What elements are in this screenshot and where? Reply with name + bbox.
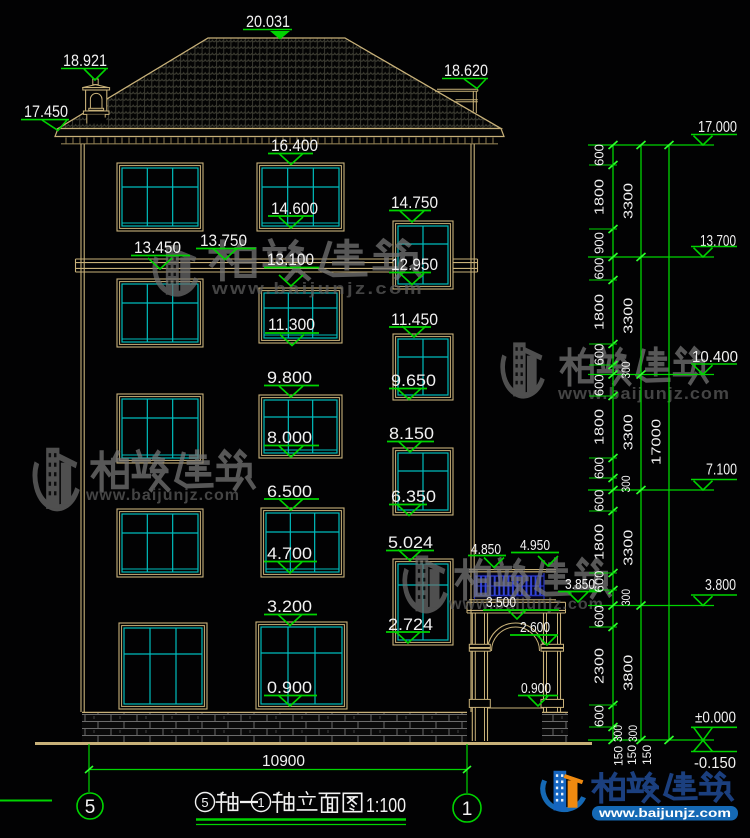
svg-text:www.baijunjz.com: www.baijunjz.com	[211, 279, 424, 298]
svg-text:18.620: 18.620	[444, 61, 488, 80]
svg-text:5.024: 5.024	[388, 533, 433, 552]
svg-text:1:100: 1:100	[366, 795, 406, 817]
svg-text:8.000: 8.000	[267, 428, 312, 447]
svg-text:18.921: 18.921	[63, 51, 107, 70]
svg-text:3.850: 3.850	[565, 577, 595, 593]
svg-text:13.100: 13.100	[267, 250, 314, 269]
svg-text:3.800: 3.800	[705, 577, 736, 594]
svg-text:300: 300	[611, 725, 625, 742]
svg-text:600: 600	[592, 144, 607, 166]
svg-text:www.baijunjz.com: www.baijunjz.com	[598, 808, 731, 820]
svg-text:3.200: 3.200	[267, 597, 312, 616]
svg-text:www.baijunjz.com: www.baijunjz.com	[85, 487, 240, 504]
svg-text:17.000: 17.000	[698, 119, 737, 136]
svg-text:7.100: 7.100	[706, 462, 737, 479]
svg-text:10900: 10900	[262, 753, 305, 770]
svg-text:3300: 3300	[621, 530, 636, 566]
svg-text:1: 1	[462, 799, 473, 820]
svg-text:3800: 3800	[621, 655, 636, 691]
svg-text:www.baijunjz.com: www.baijunjz.com	[557, 384, 730, 403]
svg-text:11.300: 11.300	[268, 315, 315, 334]
svg-text:6.350: 6.350	[391, 487, 436, 506]
svg-text:13.450: 13.450	[134, 238, 181, 257]
svg-text:14.750: 14.750	[391, 193, 438, 212]
svg-text:150: 150	[640, 745, 654, 765]
svg-text:600: 600	[592, 571, 607, 593]
svg-text:0.900: 0.900	[521, 681, 551, 697]
svg-text:3.500: 3.500	[486, 595, 516, 611]
svg-text:600: 600	[592, 258, 607, 280]
svg-text:8.150: 8.150	[389, 424, 434, 443]
svg-text:4.950: 4.950	[520, 538, 550, 554]
svg-text:13.700: 13.700	[700, 233, 736, 250]
svg-text:600: 600	[592, 344, 607, 366]
svg-text:±0.000: ±0.000	[695, 710, 736, 727]
svg-text:16.400: 16.400	[271, 136, 318, 155]
svg-text:600: 600	[592, 490, 607, 512]
svg-text:300: 300	[626, 725, 640, 742]
svg-text:-0.150: -0.150	[694, 755, 736, 772]
svg-text:1800: 1800	[592, 524, 607, 560]
svg-text:1: 1	[257, 795, 264, 810]
svg-text:600: 600	[592, 705, 607, 727]
svg-text:600: 600	[592, 605, 607, 627]
svg-text:150: 150	[612, 746, 626, 766]
svg-text:9.650: 9.650	[391, 371, 436, 390]
svg-text:3300: 3300	[621, 183, 636, 219]
svg-text:5: 5	[201, 795, 208, 810]
svg-text:4.700: 4.700	[267, 544, 312, 563]
svg-text:9.800: 9.800	[267, 368, 312, 387]
svg-text:20.031: 20.031	[246, 12, 290, 31]
svg-text:900: 900	[592, 232, 607, 254]
svg-text:300: 300	[619, 589, 633, 606]
svg-text:2.600: 2.600	[520, 620, 550, 636]
svg-text:17000: 17000	[649, 419, 664, 465]
svg-text:3300: 3300	[621, 414, 636, 450]
svg-text:0.900: 0.900	[267, 678, 312, 697]
svg-text:3300: 3300	[621, 298, 636, 334]
svg-text:300: 300	[619, 475, 633, 492]
svg-text:150: 150	[625, 745, 639, 765]
svg-text:13.750: 13.750	[200, 231, 247, 250]
svg-text:1800: 1800	[592, 409, 607, 445]
svg-text:1800: 1800	[592, 294, 607, 330]
svg-text:300: 300	[619, 361, 633, 378]
svg-text:600: 600	[592, 374, 607, 396]
svg-text:12.950: 12.950	[391, 255, 438, 274]
svg-text:5: 5	[85, 797, 96, 818]
svg-text:1800: 1800	[592, 179, 607, 215]
svg-text:600: 600	[592, 457, 607, 479]
svg-text:17.450: 17.450	[24, 102, 68, 121]
svg-text:2300: 2300	[592, 648, 607, 684]
